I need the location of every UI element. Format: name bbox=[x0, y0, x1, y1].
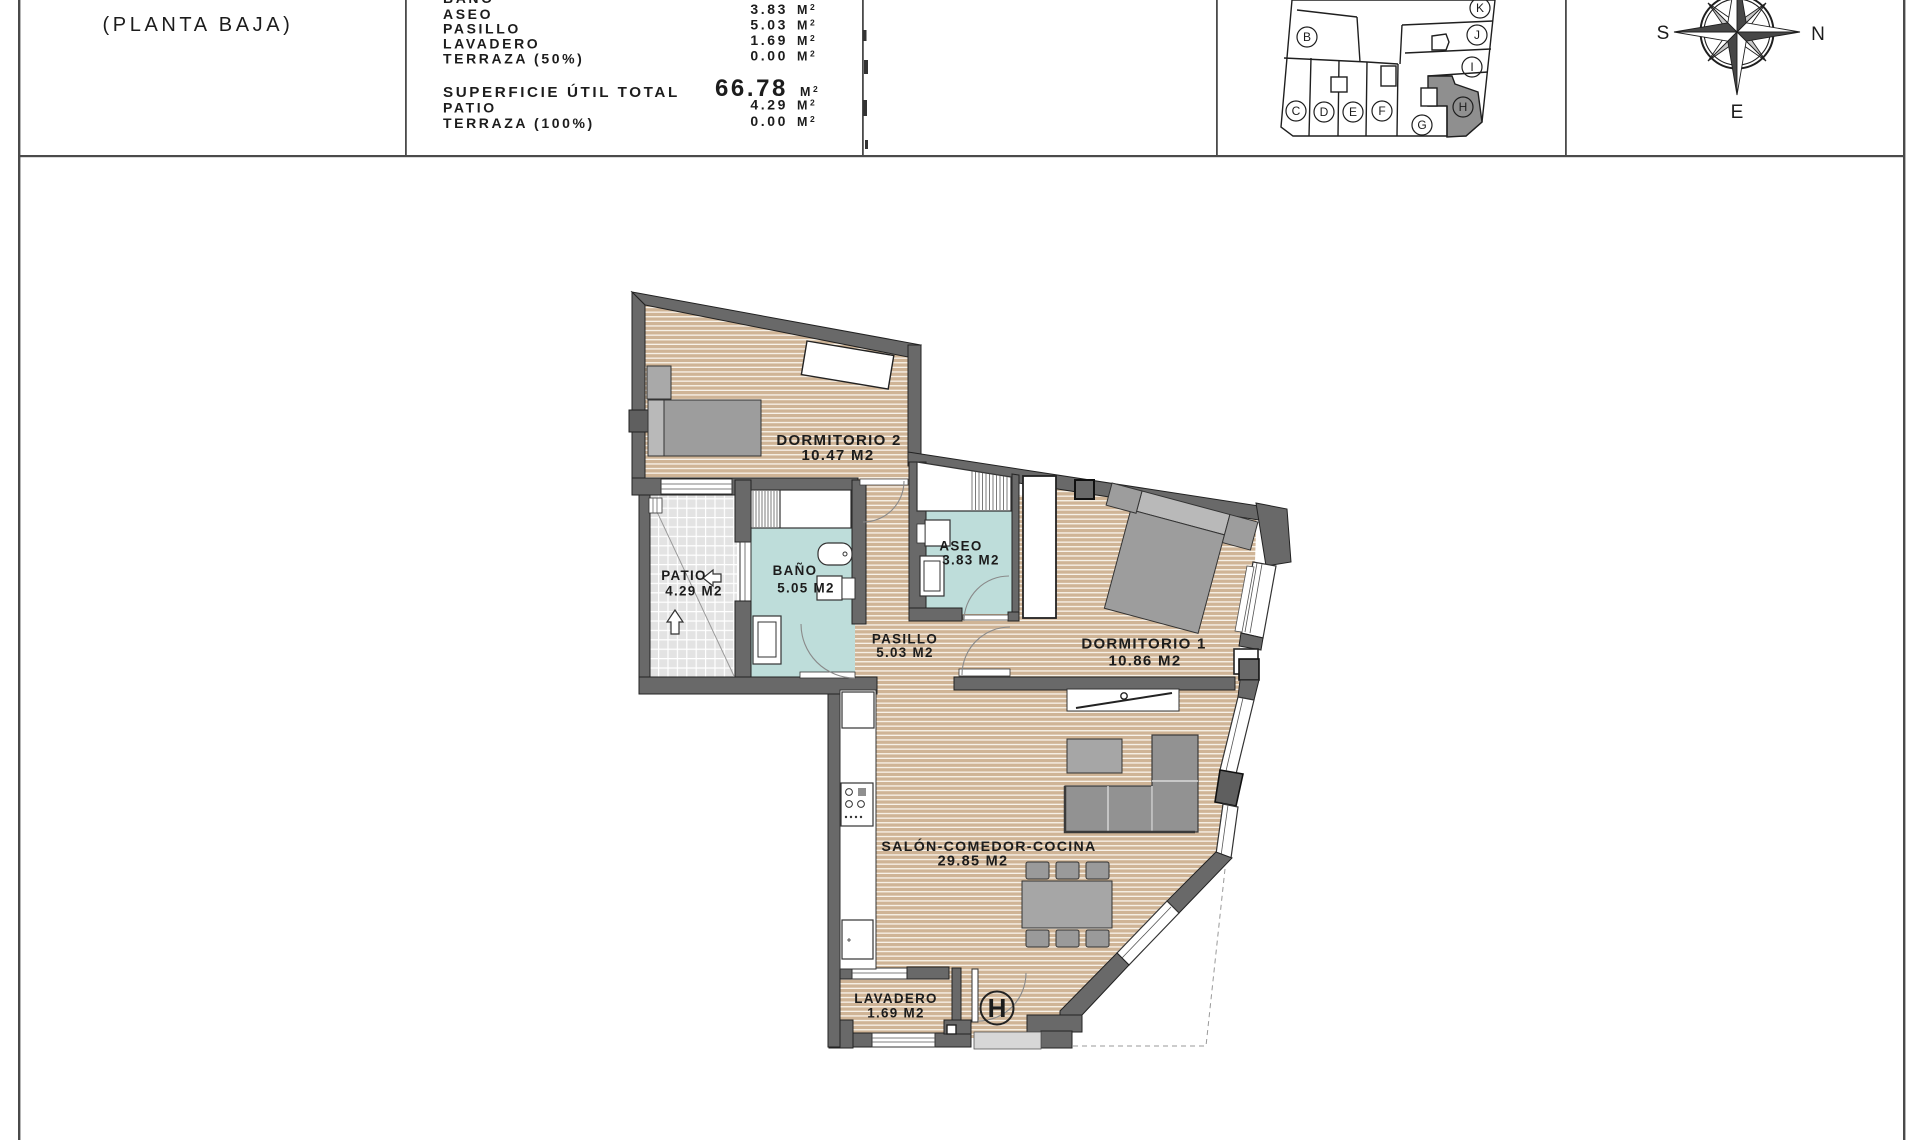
svg-text:B: B bbox=[1303, 30, 1311, 44]
svg-text:DORMITORIO 1: DORMITORIO 1 bbox=[1081, 636, 1206, 653]
svg-text:J: J bbox=[1474, 28, 1480, 42]
svg-text:N: N bbox=[1811, 24, 1825, 45]
svg-text:(PLANTA BAJA): (PLANTA BAJA) bbox=[103, 14, 294, 36]
svg-text:SUPERFICIE ÚTIL TOTAL: SUPERFICIE ÚTIL TOTAL bbox=[443, 83, 680, 101]
svg-text:10.86 M2: 10.86 M2 bbox=[1109, 653, 1182, 670]
svg-text:H: H bbox=[988, 993, 1007, 1023]
svg-text:I: I bbox=[1470, 60, 1473, 74]
svg-text:5.03 M2: 5.03 M2 bbox=[876, 645, 933, 660]
svg-text:K: K bbox=[1476, 1, 1484, 15]
svg-text:ASEO: ASEO bbox=[939, 539, 982, 554]
svg-text:0.00: 0.00 bbox=[750, 113, 788, 129]
svg-text:E: E bbox=[1731, 102, 1744, 123]
svg-text:0.00: 0.00 bbox=[750, 48, 788, 64]
svg-text:LAVADERO: LAVADERO bbox=[443, 36, 540, 52]
svg-text:PATIO: PATIO bbox=[443, 100, 497, 116]
svg-text:H: H bbox=[1459, 100, 1468, 114]
svg-text:BAÑO: BAÑO bbox=[773, 563, 818, 578]
svg-text:C: C bbox=[1292, 104, 1301, 118]
svg-text:TERRAZA (100%): TERRAZA (100%) bbox=[443, 115, 595, 131]
svg-text:3.83 M2: 3.83 M2 bbox=[942, 553, 999, 568]
svg-text:LAVADERO: LAVADERO bbox=[854, 991, 938, 1006]
svg-text:5.05 M2: 5.05 M2 bbox=[777, 581, 834, 596]
svg-text:10.47 M2: 10.47 M2 bbox=[802, 447, 875, 464]
svg-text:4.29 M2: 4.29 M2 bbox=[665, 584, 722, 599]
svg-text:D: D bbox=[1320, 105, 1329, 119]
svg-text:G: G bbox=[1417, 118, 1426, 132]
svg-text:1.69: 1.69 bbox=[750, 32, 788, 48]
svg-text:TERRAZA (50%): TERRAZA (50%) bbox=[443, 51, 584, 67]
svg-text:E: E bbox=[1349, 105, 1357, 119]
svg-text:4.29: 4.29 bbox=[750, 97, 788, 113]
svg-text:29.85 M2: 29.85 M2 bbox=[938, 854, 1009, 870]
svg-text:3.83: 3.83 bbox=[750, 1, 788, 17]
svg-text:F: F bbox=[1378, 104, 1385, 118]
svg-text:5.03: 5.03 bbox=[750, 17, 788, 33]
svg-text:1.69 M2: 1.69 M2 bbox=[867, 1006, 924, 1021]
svg-text:S: S bbox=[1657, 23, 1670, 44]
svg-text:PASILLO: PASILLO bbox=[443, 21, 521, 37]
svg-text:SALÓN-COMEDOR-COCINA: SALÓN-COMEDOR-COCINA bbox=[881, 837, 1096, 855]
svg-text:PATIO: PATIO bbox=[661, 568, 706, 583]
